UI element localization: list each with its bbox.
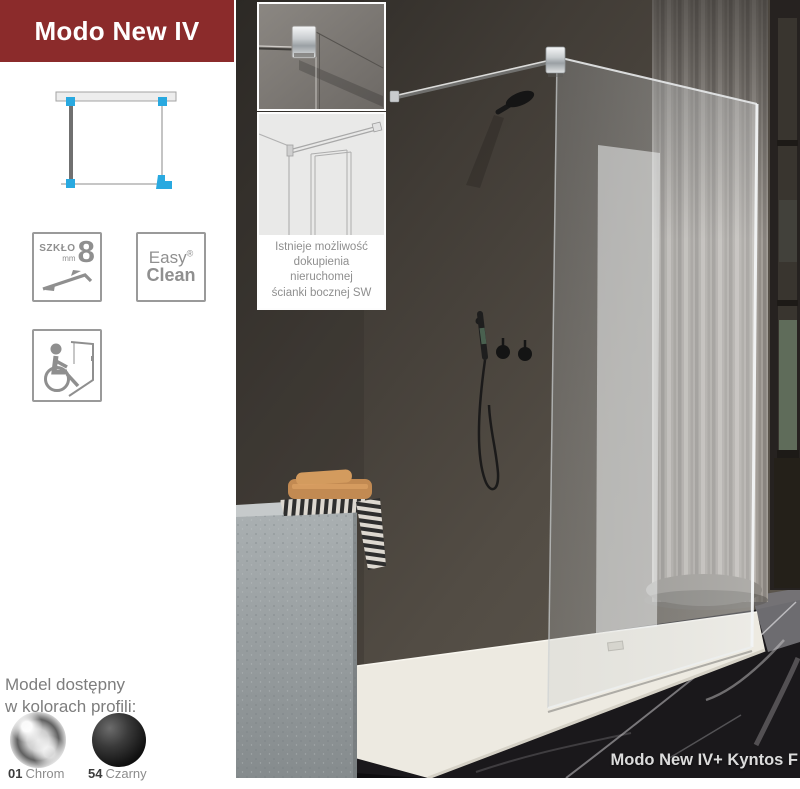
availability-line1: Model dostępny	[5, 674, 136, 696]
wheelchair-access-icon	[36, 334, 98, 398]
photo-caption: Modo New IV+ Kyntos F	[611, 751, 798, 770]
side-wall-note: Istnieje możliwość dokupienia nieruchome…	[259, 235, 384, 301]
glass-pane-icon	[40, 268, 96, 294]
easy-clean-badge: Easy® Clean	[136, 232, 206, 302]
color-swatch-black	[92, 713, 146, 767]
bracket-detail	[259, 4, 384, 109]
swatch-name: Czarny	[105, 766, 146, 781]
wall-anchor	[390, 91, 399, 102]
swatch-code: 54	[88, 766, 102, 781]
plan-schematic	[48, 82, 198, 197]
swatch-label-czarny: 54Czarny	[88, 766, 147, 781]
easy-clean-word2: Clean	[146, 266, 195, 285]
connector-marker	[158, 97, 167, 106]
swatch-name: Chrom	[25, 766, 64, 781]
swatch-code: 01	[8, 766, 22, 781]
color-swatch-chrome	[10, 712, 66, 768]
connector-marker	[66, 179, 75, 188]
concrete-bench	[236, 498, 357, 778]
window	[770, 0, 800, 590]
registered-mark: ®	[187, 248, 194, 258]
glass-panel	[548, 57, 757, 712]
top-bracket	[546, 47, 565, 77]
title-banner: Modo New IV	[0, 0, 234, 62]
note-line1: Istnieje możliwość	[259, 240, 384, 255]
side-wall-drawing	[259, 114, 384, 235]
glass-thickness-badge: SZKŁO mm 8	[32, 232, 102, 302]
window-greenery	[779, 320, 797, 450]
detail-drawing-inset: Istnieje możliwość dokupienia nieruchome…	[257, 112, 386, 310]
availability-heading: Model dostępny w kolorach profili:	[5, 674, 136, 718]
note-line2: dokupienia	[259, 255, 384, 270]
glass-reflection	[596, 145, 660, 633]
glass-label: SZKŁO	[39, 244, 75, 254]
glass-thickness-value: 8	[78, 239, 95, 265]
swatch-label-chrom: 01Chrom	[8, 766, 64, 781]
note-line3: nieruchomej	[259, 270, 384, 285]
detail-photo-inset	[257, 2, 386, 111]
glass-unit: mm	[62, 255, 75, 263]
product-title: Modo New IV	[34, 16, 199, 47]
corner-connector-marker	[156, 175, 172, 189]
catalog-page: Modo New IV SZKŁO mm 8 Easy® Clea	[0, 0, 800, 789]
easy-clean-word1: Easy	[149, 248, 187, 267]
connector-marker	[66, 97, 75, 106]
note-line4: ścianki bocznej SW	[259, 286, 384, 301]
accessibility-badge	[32, 329, 102, 402]
